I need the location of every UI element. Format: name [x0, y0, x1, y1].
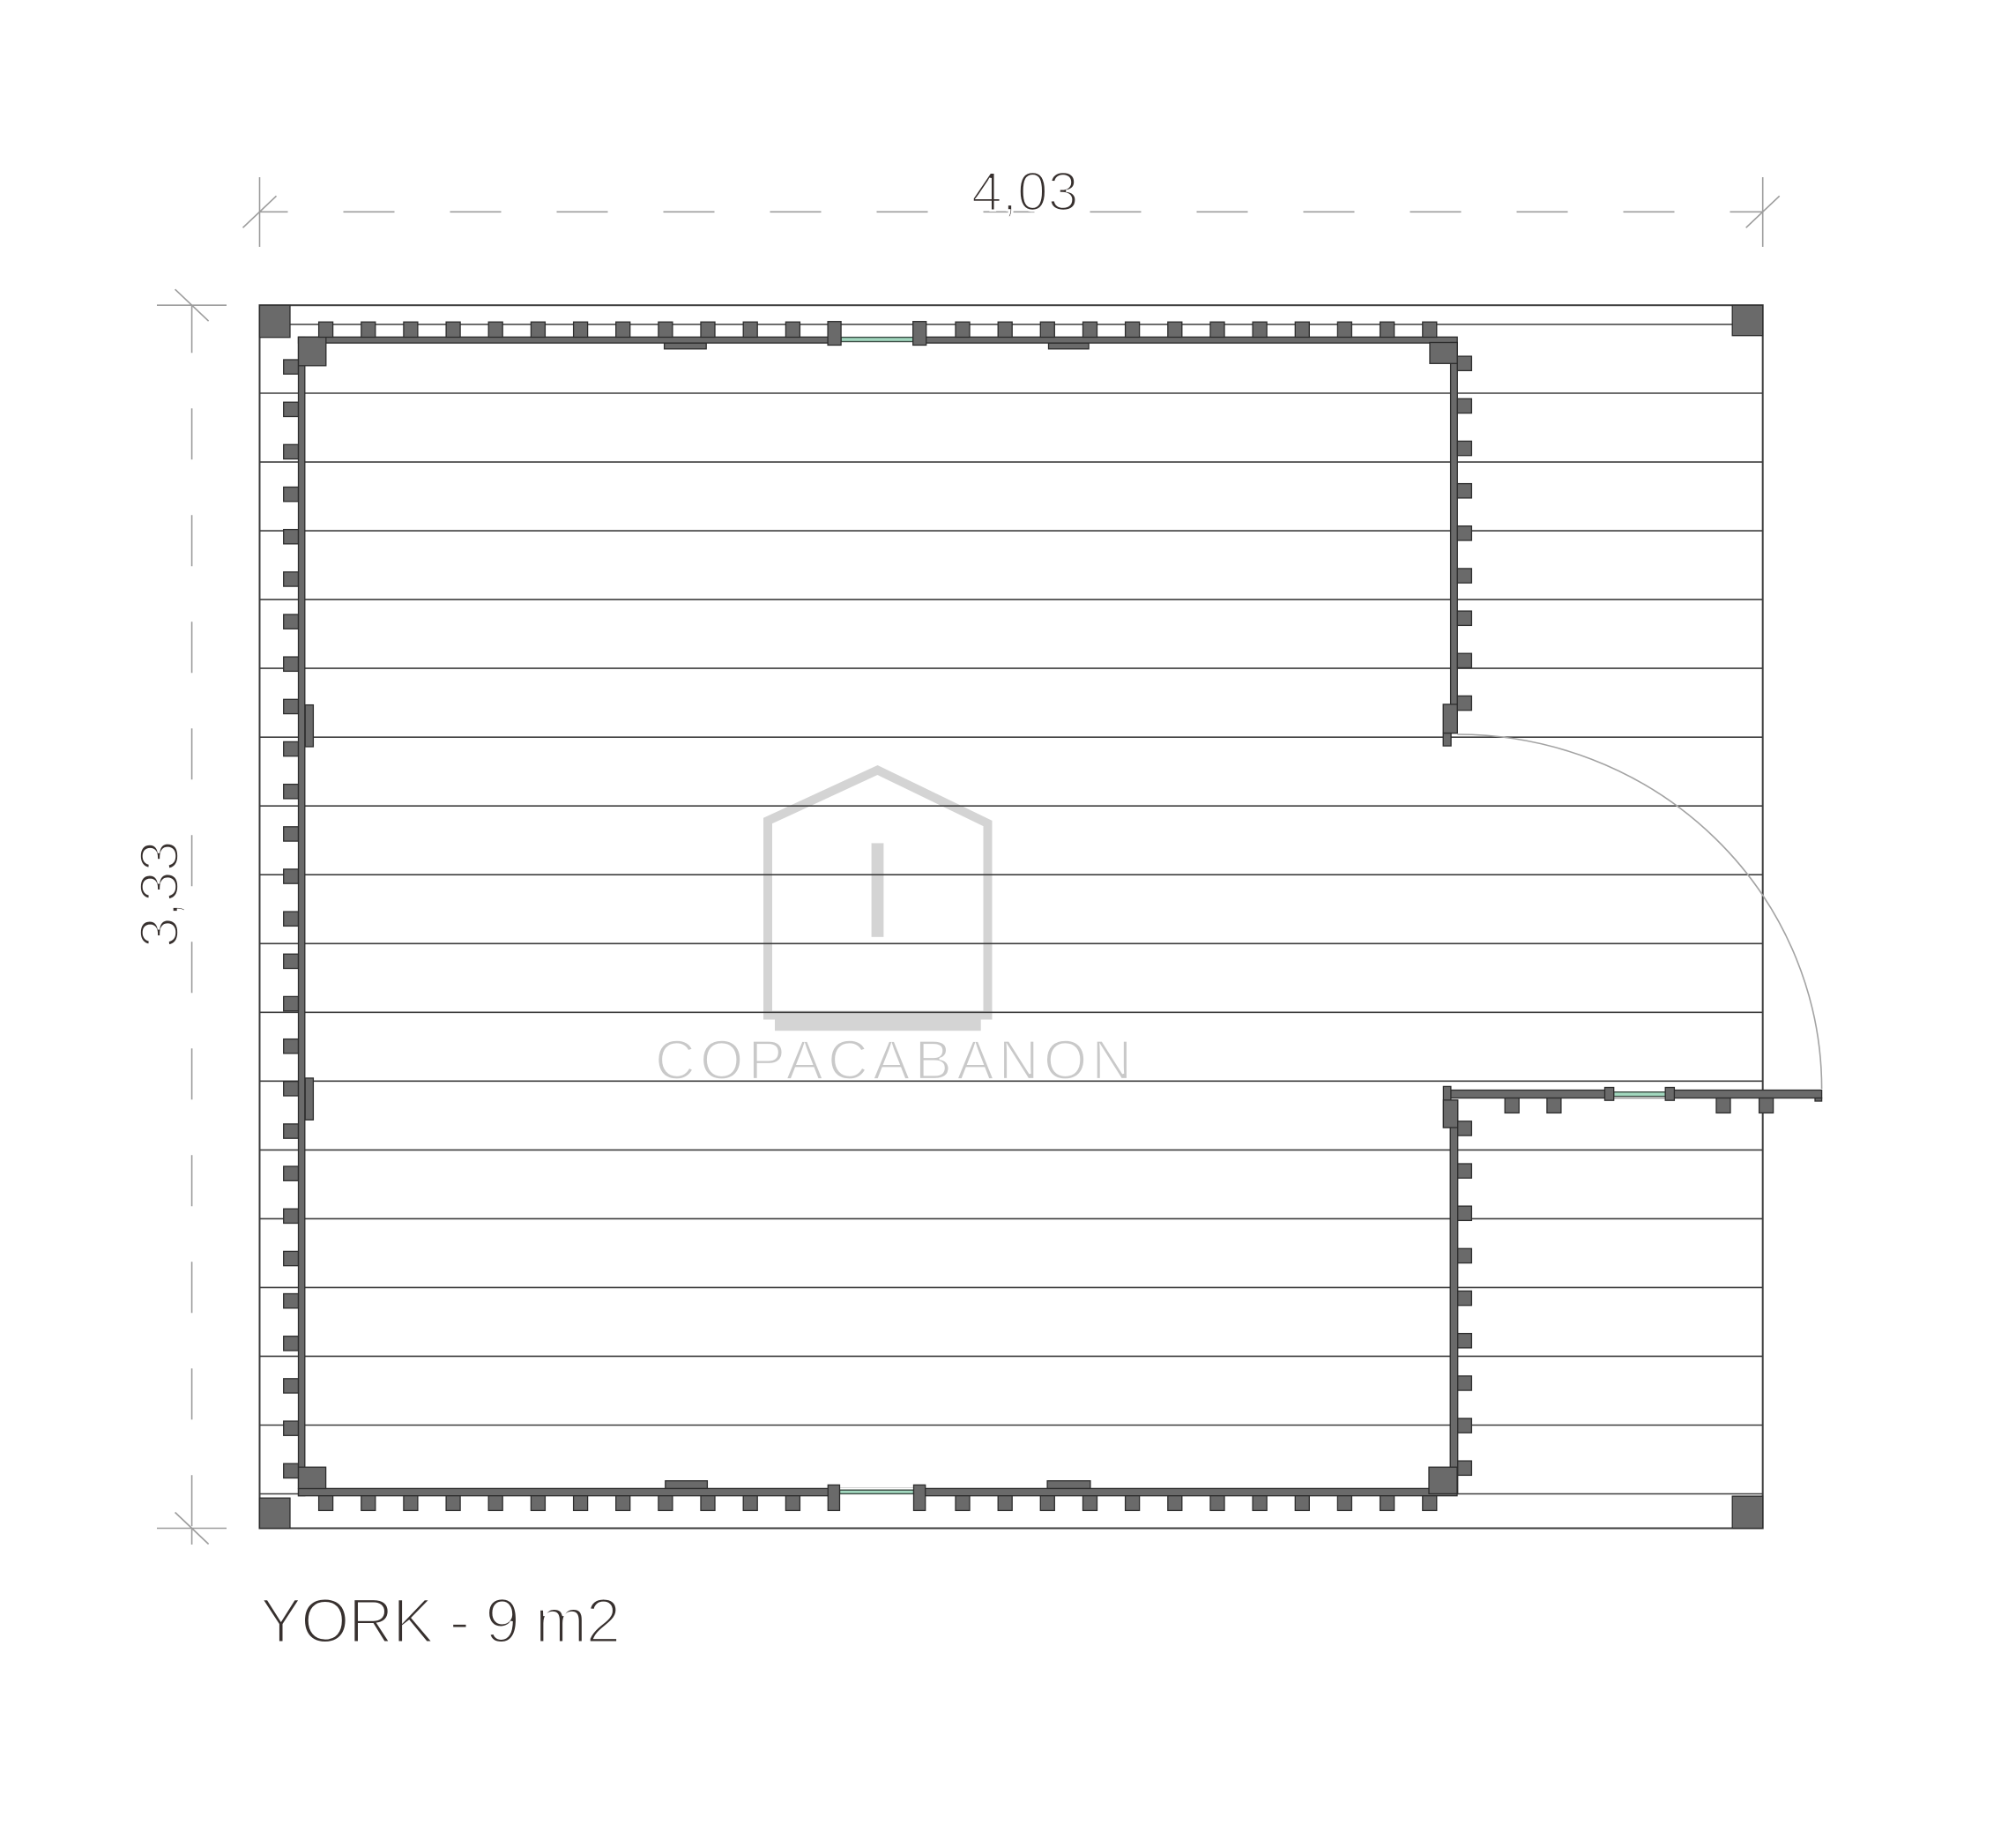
svg-text:3,33: 3,33	[130, 841, 190, 948]
svg-text:COPACABANON: COPACABANON	[655, 1030, 1136, 1091]
svg-text:4,03: 4,03	[971, 162, 1078, 223]
svg-text:YORK - 9 m2: YORK - 9 m2	[260, 1587, 620, 1657]
